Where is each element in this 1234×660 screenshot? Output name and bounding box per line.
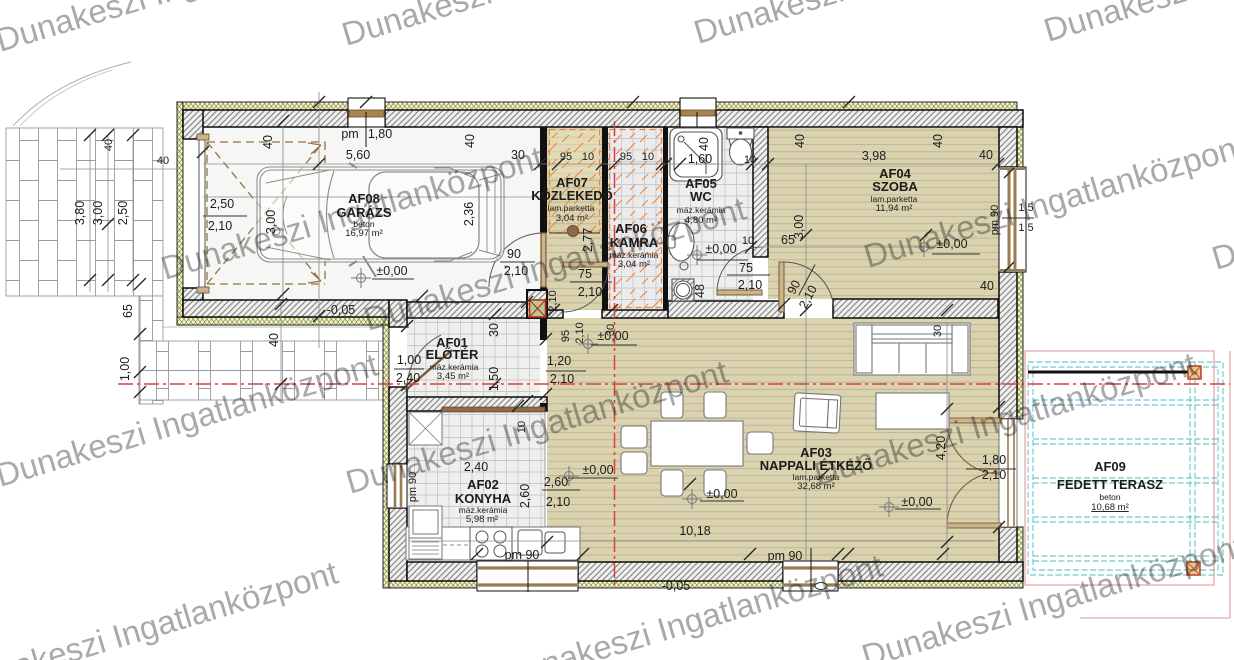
svg-text:2,60: 2,60 xyxy=(518,484,532,508)
svg-text:40: 40 xyxy=(793,134,807,148)
svg-text:10: 10 xyxy=(744,154,756,166)
svg-text:3,00: 3,00 xyxy=(91,201,105,225)
svg-text:3,80: 3,80 xyxy=(73,201,87,225)
svg-text:40: 40 xyxy=(931,134,945,148)
svg-text:40: 40 xyxy=(697,137,711,151)
svg-text:2,10: 2,10 xyxy=(982,468,1006,482)
svg-text:2,40: 2,40 xyxy=(396,371,420,385)
svg-text:pm 90: pm 90 xyxy=(768,549,803,563)
svg-text:95: 95 xyxy=(620,151,632,163)
svg-text:AF09: AF09 xyxy=(1094,459,1126,474)
svg-text:±0,00: ±0,00 xyxy=(376,264,407,278)
svg-text:2,10: 2,10 xyxy=(574,322,586,343)
svg-text:5,60: 5,60 xyxy=(346,148,370,162)
svg-text:48: 48 xyxy=(693,284,707,298)
svg-text:95: 95 xyxy=(560,330,572,342)
svg-text:5,98 m²: 5,98 m² xyxy=(466,514,498,525)
svg-text:3,00: 3,00 xyxy=(792,215,806,239)
svg-text:3,98: 3,98 xyxy=(862,149,886,163)
svg-text:±0,00: ±0,00 xyxy=(706,487,737,501)
svg-text:65: 65 xyxy=(121,304,135,318)
svg-text:10: 10 xyxy=(742,235,754,247)
svg-text:3,04 m²: 3,04 m² xyxy=(556,213,588,224)
svg-text:1,60: 1,60 xyxy=(688,152,712,166)
svg-text:40: 40 xyxy=(157,155,169,167)
svg-text:2,10: 2,10 xyxy=(738,278,762,292)
svg-text:2,36: 2,36 xyxy=(462,202,476,226)
svg-text:2,50: 2,50 xyxy=(210,197,234,211)
svg-text:40: 40 xyxy=(980,279,994,293)
svg-text:KÖZLEKEDŐ: KÖZLEKEDŐ xyxy=(531,188,613,203)
svg-text:pm 90: pm 90 xyxy=(505,548,540,562)
svg-text:1,50: 1,50 xyxy=(487,367,501,391)
svg-text:1,20: 1,20 xyxy=(547,354,571,368)
svg-text:10,18: 10,18 xyxy=(679,524,710,538)
svg-text:30: 30 xyxy=(487,323,501,337)
svg-text:±0,00: ±0,00 xyxy=(582,463,613,477)
svg-text:10,68 m²: 10,68 m² xyxy=(1091,502,1129,513)
svg-text:AF02: AF02 xyxy=(467,477,499,492)
svg-text:75: 75 xyxy=(739,261,753,275)
svg-text:40: 40 xyxy=(463,134,477,148)
svg-text:40: 40 xyxy=(267,333,281,347)
svg-text:30: 30 xyxy=(932,325,944,337)
svg-text:2,10: 2,10 xyxy=(550,372,574,386)
svg-text:40: 40 xyxy=(261,135,275,149)
svg-text:95: 95 xyxy=(560,151,572,163)
svg-text:2,60: 2,60 xyxy=(544,475,568,489)
svg-text:-0,05: -0,05 xyxy=(662,579,691,593)
svg-text:30: 30 xyxy=(605,324,617,336)
svg-text:11,94 m²: 11,94 m² xyxy=(876,203,913,214)
svg-text:1,00: 1,00 xyxy=(118,357,132,381)
svg-text:10: 10 xyxy=(582,151,594,163)
svg-text:1,80: 1,80 xyxy=(368,127,392,141)
svg-text:ELŐTÉR: ELŐTÉR xyxy=(426,347,479,362)
svg-text:1,80: 1,80 xyxy=(982,453,1006,467)
svg-text:lam.parketta: lam.parketta xyxy=(548,203,595,213)
svg-text:2,10: 2,10 xyxy=(547,290,559,311)
svg-text:2,10: 2,10 xyxy=(578,285,602,299)
svg-text:2,50: 2,50 xyxy=(116,201,130,225)
svg-text:SZOBA: SZOBA xyxy=(872,179,918,194)
svg-text:±0,00: ±0,00 xyxy=(705,242,736,256)
svg-text:pm: pm xyxy=(341,127,358,141)
svg-text:3,45 m²: 3,45 m² xyxy=(437,371,469,382)
svg-text:10: 10 xyxy=(642,151,654,163)
svg-text:1,00: 1,00 xyxy=(397,353,421,367)
svg-text:KONYHA: KONYHA xyxy=(455,491,512,506)
svg-text:beton: beton xyxy=(1099,492,1121,502)
svg-text:±0,00: ±0,00 xyxy=(901,495,932,509)
svg-text:-0,05: -0,05 xyxy=(327,303,356,317)
svg-text:40: 40 xyxy=(103,139,115,151)
svg-text:FEDETT TERASZ: FEDETT TERASZ xyxy=(1057,477,1163,492)
svg-text:40: 40 xyxy=(979,148,993,162)
svg-text:2,10: 2,10 xyxy=(546,495,570,509)
